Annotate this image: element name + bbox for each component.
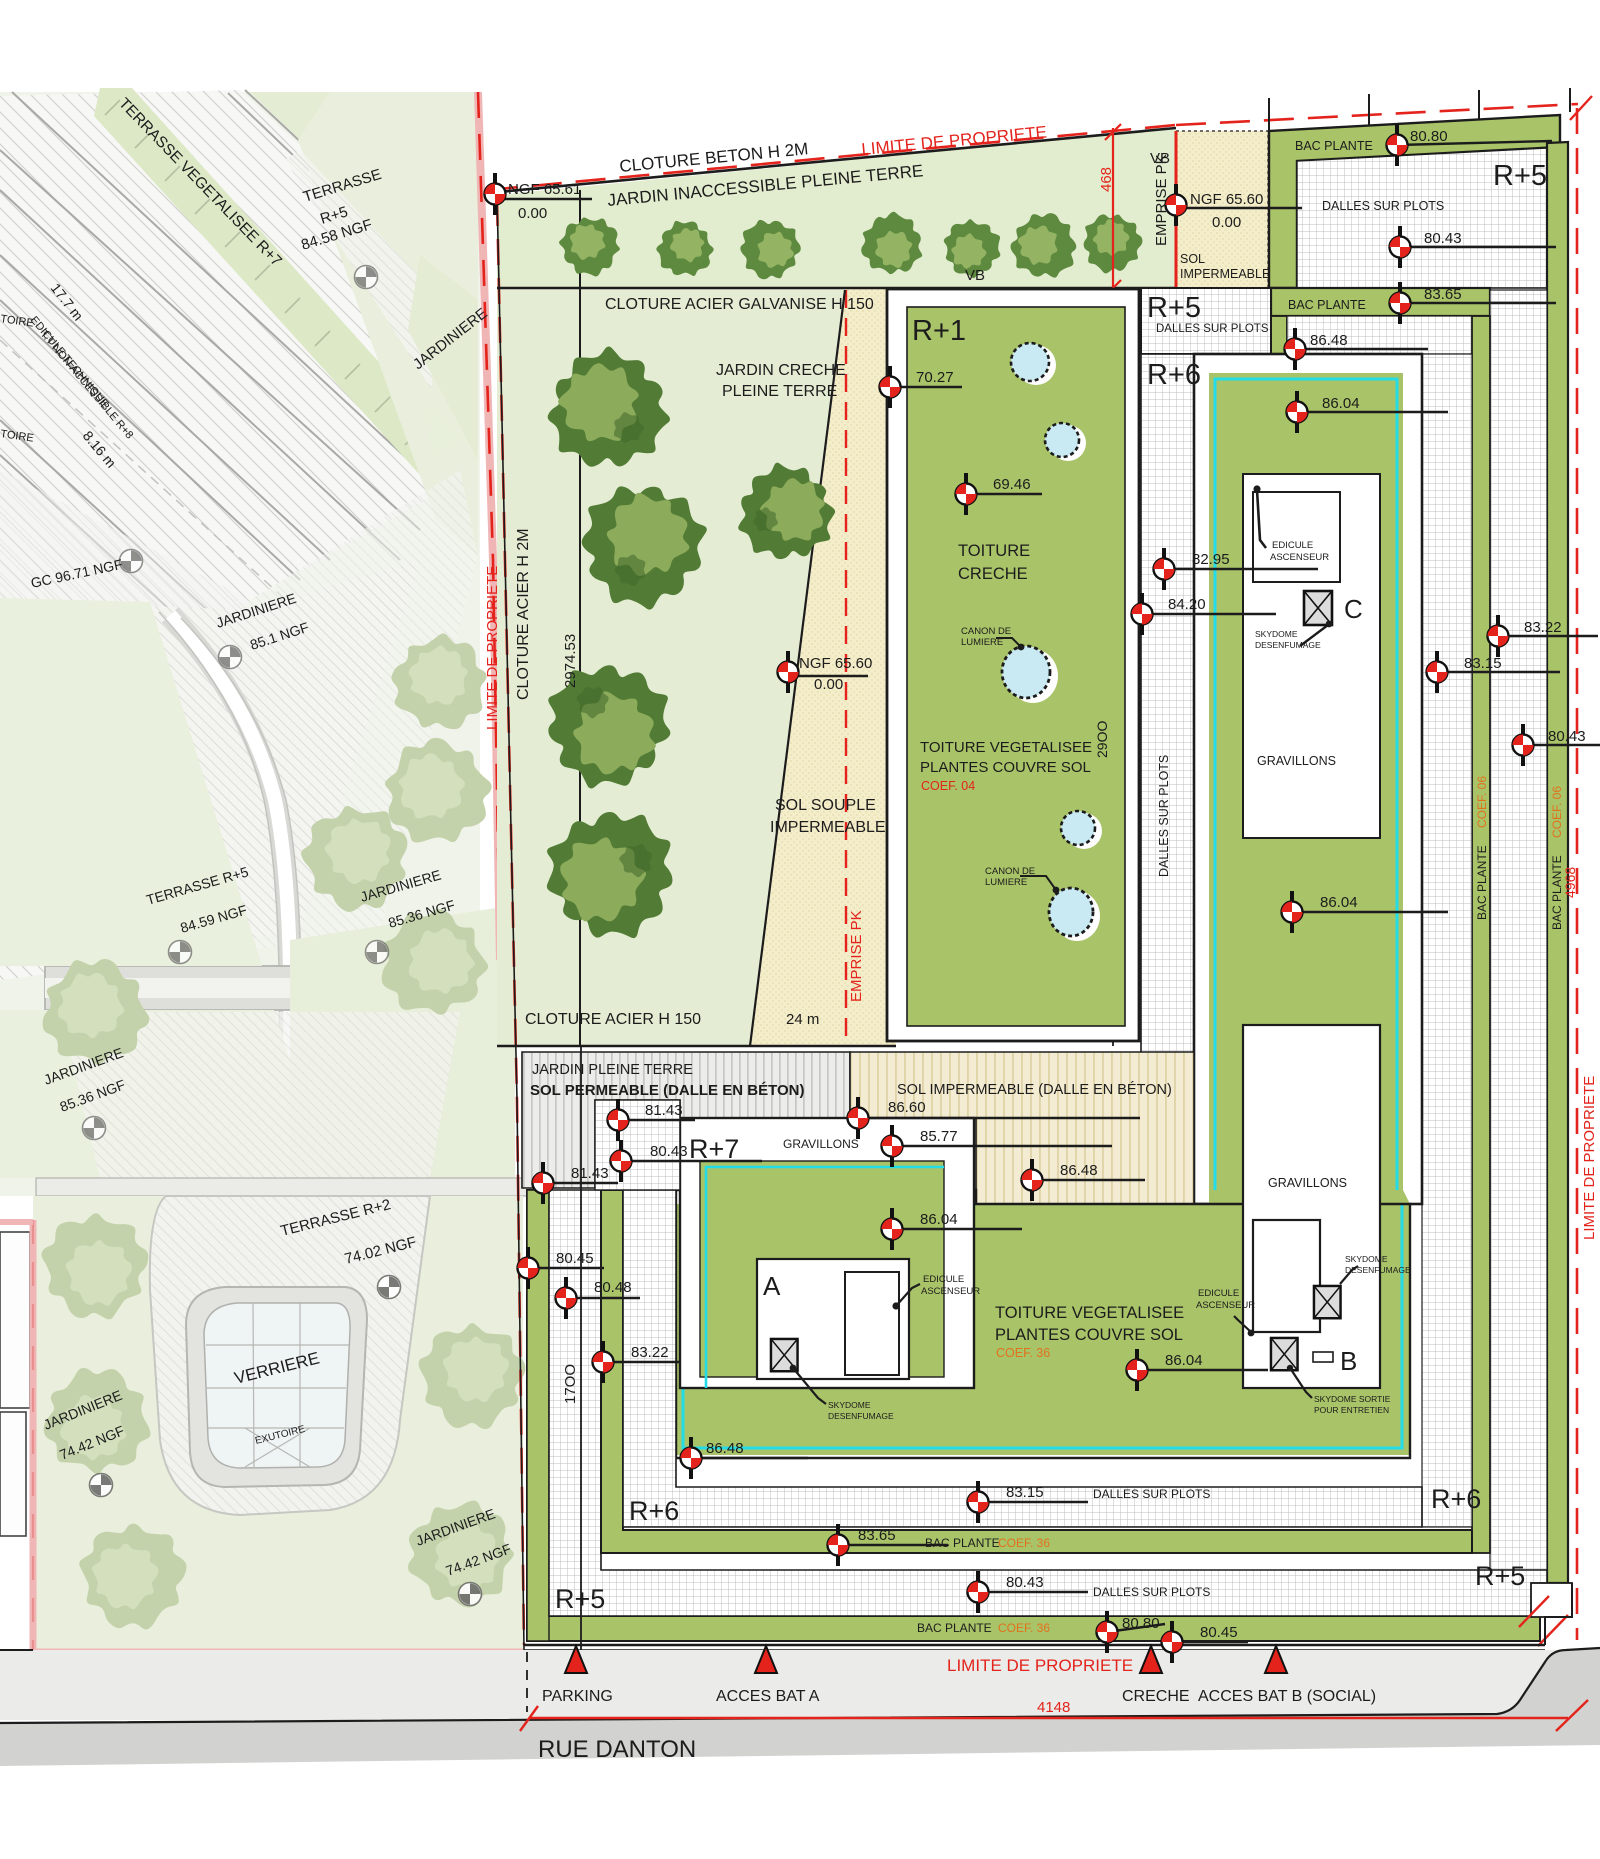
svg-text:29OO: 29OO <box>1094 721 1110 758</box>
svg-text:85.77: 85.77 <box>920 1128 958 1145</box>
svg-text:R+6: R+6 <box>1431 1484 1481 1514</box>
svg-text:COEF. 36: COEF. 36 <box>998 1621 1050 1635</box>
svg-text:R+5: R+5 <box>1147 292 1201 324</box>
svg-text:BAC PLANTE: BAC PLANTE <box>917 1621 992 1635</box>
svg-text:DALLES SUR PLOTS: DALLES SUR PLOTS <box>1093 1487 1210 1501</box>
svg-text:SKYDOME: SKYDOME <box>1345 1254 1388 1264</box>
svg-text:R+5: R+5 <box>1493 160 1547 192</box>
svg-text:468: 468 <box>1098 167 1115 192</box>
svg-text:SKYDOME: SKYDOME <box>1255 629 1298 639</box>
svg-text:C: C <box>1344 594 1363 624</box>
svg-text:BAC PLANTE: BAC PLANTE <box>1475 845 1489 920</box>
svg-text:GRAVILLONS: GRAVILLONS <box>1257 754 1336 768</box>
svg-text:R+7: R+7 <box>689 1134 739 1164</box>
svg-text:DESENFUMAGE: DESENFUMAGE <box>1345 1265 1411 1275</box>
svg-text:83.22: 83.22 <box>1524 619 1562 636</box>
svg-text:CANON DE: CANON DE <box>985 866 1035 877</box>
svg-text:PLEINE TERRE: PLEINE TERRE <box>722 383 837 400</box>
svg-text:82.95: 82.95 <box>1192 551 1230 568</box>
svg-text:ASCENSEUR: ASCENSEUR <box>921 1286 980 1297</box>
svg-text:83.65: 83.65 <box>858 1527 896 1544</box>
svg-text:BAC PLANTE: BAC PLANTE <box>1295 139 1373 153</box>
svg-text:BAC PLANTE: BAC PLANTE <box>925 1536 1000 1550</box>
svg-text:86.48: 86.48 <box>706 1440 744 1457</box>
svg-text:GRAVILLONS: GRAVILLONS <box>1268 1176 1347 1190</box>
svg-text:83.15: 83.15 <box>1006 1484 1044 1501</box>
svg-text:R+6: R+6 <box>629 1496 679 1526</box>
svg-text:86.04: 86.04 <box>920 1211 958 1228</box>
svg-text:R+1: R+1 <box>912 315 966 347</box>
svg-text:JARDIN CRECHE: JARDIN CRECHE <box>716 362 846 379</box>
svg-text:ASCENSEUR: ASCENSEUR <box>1196 1300 1255 1311</box>
svg-text:0.00: 0.00 <box>1212 214 1241 231</box>
svg-text:ACCES BAT B (SOCIAL): ACCES BAT B (SOCIAL) <box>1198 1688 1376 1705</box>
svg-text:86.48: 86.48 <box>1310 332 1348 349</box>
svg-text:COEF. 06: COEF. 06 <box>1475 776 1489 828</box>
svg-text:EDICULE: EDICULE <box>1272 540 1313 551</box>
svg-text:0.00: 0.00 <box>814 676 843 693</box>
svg-text:86.04: 86.04 <box>1165 1352 1203 1369</box>
svg-text:EMPRISE PK: EMPRISE PK <box>848 910 865 1002</box>
svg-text:80.43: 80.43 <box>1548 728 1586 745</box>
svg-text:86.60: 86.60 <box>888 1099 926 1116</box>
svg-text:IMPERMEABLE: IMPERMEABLE <box>1180 267 1270 281</box>
svg-text:TOITURE VEGETALISEE: TOITURE VEGETALISEE <box>995 1304 1184 1322</box>
svg-text:R+5: R+5 <box>1475 1561 1525 1591</box>
svg-text:SOL IMPERMEABLE (DALLE EN BÉT: SOL IMPERMEABLE (DALLE EN BÉTON) <box>897 1081 1172 1098</box>
svg-text:86.04: 86.04 <box>1320 894 1358 911</box>
svg-text:84.20: 84.20 <box>1168 596 1206 613</box>
svg-text:17OO: 17OO <box>562 1364 579 1404</box>
svg-text:4148: 4148 <box>1037 1699 1070 1716</box>
svg-text:LIMITE DE PROPRIETE: LIMITE DE PROPRIETE <box>484 566 501 730</box>
svg-text:DALLES SUR PLOTS: DALLES SUR PLOTS <box>1156 323 1269 335</box>
svg-text:NGF 65.60: NGF 65.60 <box>1190 191 1263 208</box>
svg-text:CLOTURE ACIER H 2M: CLOTURE ACIER H 2M <box>515 528 532 700</box>
svg-text:BAC PLANTE: BAC PLANTE <box>1288 298 1366 312</box>
svg-text:COEF. 36: COEF. 36 <box>996 1346 1050 1360</box>
svg-text:POUR ENTRETIEN: POUR ENTRETIEN <box>1314 1405 1389 1415</box>
svg-text:SKYDOME SORTIE: SKYDOME SORTIE <box>1314 1394 1391 1404</box>
svg-text:EDICULE: EDICULE <box>1198 1288 1239 1299</box>
svg-text:83.22: 83.22 <box>631 1344 669 1361</box>
svg-text:80.43: 80.43 <box>1424 230 1462 247</box>
svg-text:PARKING: PARKING <box>542 1688 613 1705</box>
svg-text:R+5: R+5 <box>555 1584 605 1614</box>
svg-text:69.46: 69.46 <box>993 476 1031 493</box>
svg-text:LUMIERE: LUMIERE <box>985 877 1027 888</box>
svg-text:ASCENSEUR: ASCENSEUR <box>1270 552 1329 563</box>
svg-text:SOL: SOL <box>1180 252 1205 266</box>
svg-text:80.80: 80.80 <box>1122 1615 1160 1632</box>
svg-text:ACCES BAT A: ACCES BAT A <box>716 1688 820 1705</box>
svg-text:LIMITE DE PROPRIETE: LIMITE DE PROPRIETE <box>1581 1076 1598 1240</box>
svg-text:CRECHE: CRECHE <box>1122 1688 1190 1705</box>
svg-text:80.45: 80.45 <box>1200 1624 1238 1641</box>
svg-text:DALLES SUR PLOTS: DALLES SUR PLOTS <box>1322 199 1444 213</box>
svg-text:2974.53: 2974.53 <box>562 634 579 688</box>
svg-text:86.48: 86.48 <box>1060 1162 1098 1179</box>
svg-text:TOITURE VEGETALISEE: TOITURE VEGETALISEE <box>920 739 1092 756</box>
svg-text:PLANTES COUVRE SOL: PLANTES COUVRE SOL <box>995 1326 1183 1344</box>
svg-text:VB: VB <box>965 267 985 284</box>
svg-text:NGF 65.60: NGF 65.60 <box>799 655 872 672</box>
svg-text:81.43: 81.43 <box>645 1102 683 1119</box>
svg-text:A: A <box>763 1271 781 1301</box>
svg-text:80.48: 80.48 <box>594 1279 632 1296</box>
svg-text:DESENFUMAGE: DESENFUMAGE <box>828 1411 894 1421</box>
svg-text:4968: 4968 <box>1562 867 1578 898</box>
svg-text:R+6: R+6 <box>1147 359 1201 391</box>
svg-text:B: B <box>1340 1346 1357 1376</box>
svg-text:DALLES SUR PLOTS: DALLES SUR PLOTS <box>1157 755 1171 877</box>
svg-text:SOL SOUPLE: SOL SOUPLE <box>775 797 876 814</box>
svg-text:DESENFUMAGE: DESENFUMAGE <box>1255 640 1321 650</box>
svg-text:COEF. 04: COEF. 04 <box>921 779 975 793</box>
svg-text:TOITURE: TOITURE <box>958 542 1030 560</box>
svg-text:CLOTURE ACIER GALVANISE H 150: CLOTURE ACIER GALVANISE H 150 <box>605 296 874 313</box>
svg-text:JARDIN PLEINE TERRE: JARDIN PLEINE TERRE <box>532 1062 693 1078</box>
svg-text:SKYDOME: SKYDOME <box>828 1400 871 1410</box>
svg-text:80.43: 80.43 <box>1006 1574 1044 1591</box>
svg-text:70.27: 70.27 <box>916 369 954 386</box>
svg-text:24 m: 24 m <box>786 1011 819 1028</box>
svg-text:81.43: 81.43 <box>571 1165 609 1182</box>
svg-text:COEF. 36: COEF. 36 <box>998 1536 1050 1550</box>
svg-text:80.80: 80.80 <box>1410 128 1448 145</box>
svg-text:EDICULE: EDICULE <box>923 1274 964 1285</box>
svg-text:NGF 65.61: NGF 65.61 <box>508 181 581 198</box>
svg-text:CLOTURE ACIER H 150: CLOTURE ACIER H 150 <box>525 1011 701 1028</box>
svg-text:GRAVILLONS: GRAVILLONS <box>783 1137 859 1151</box>
svg-text:COEF. 06: COEF. 06 <box>1550 786 1564 838</box>
svg-text:0.00: 0.00 <box>518 205 547 222</box>
svg-text:80.45: 80.45 <box>556 1250 594 1267</box>
svg-text:CANON DE: CANON DE <box>961 626 1011 637</box>
svg-text:RUE DANTON: RUE DANTON <box>538 1736 696 1763</box>
svg-text:86.04: 86.04 <box>1322 395 1360 412</box>
svg-text:DALLES SUR PLOTS: DALLES SUR PLOTS <box>1093 1585 1210 1599</box>
svg-text:CRECHE: CRECHE <box>958 565 1028 583</box>
svg-text:IMPERMEABLE: IMPERMEABLE <box>770 819 886 836</box>
svg-text:LIMITE DE PROPRIETE: LIMITE DE PROPRIETE <box>947 1656 1133 1675</box>
svg-text:80.43: 80.43 <box>650 1143 688 1160</box>
svg-text:SOL PERMEABLE (DALLE EN BÉTON): SOL PERMEABLE (DALLE EN BÉTON) <box>530 1082 804 1099</box>
svg-text:83.15: 83.15 <box>1464 655 1502 672</box>
svg-text:83.65: 83.65 <box>1424 286 1462 303</box>
svg-text:LUMIERE: LUMIERE <box>961 637 1003 648</box>
svg-text:PLANTES COUVRE SOL: PLANTES COUVRE SOL <box>920 759 1091 776</box>
